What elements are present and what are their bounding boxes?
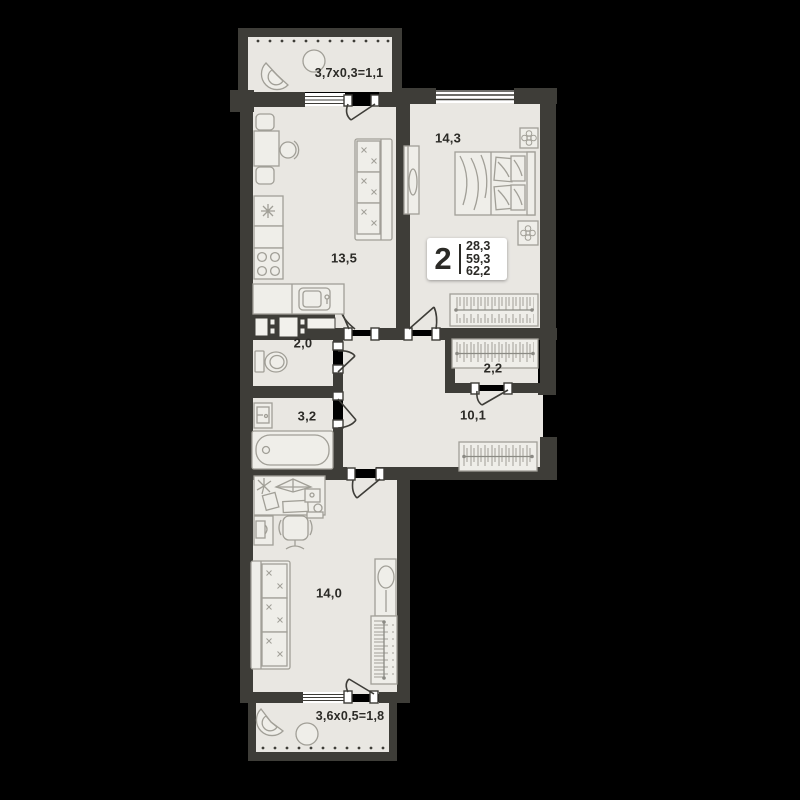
kitchen-sink-icon bbox=[253, 284, 344, 314]
nightstand-icon bbox=[518, 221, 538, 245]
apartment-info-badge: 2 28,3 59,3 62,2 bbox=[427, 238, 507, 280]
wardrobe-room-area-label: 2,2 bbox=[484, 361, 503, 376]
area-full: 62,2 bbox=[466, 265, 490, 278]
mirror-dresser-icon bbox=[404, 146, 419, 214]
bedroom-wardrobe-icon bbox=[450, 294, 538, 326]
room-mirror-icon bbox=[375, 559, 396, 616]
room-sofa-icon bbox=[251, 561, 290, 669]
monitor-icon bbox=[307, 512, 323, 518]
nightstand-icon bbox=[520, 128, 538, 148]
area-living: 28,3 bbox=[466, 240, 490, 253]
washbasin-icon bbox=[254, 403, 272, 428]
entrance-door-jamb bbox=[540, 437, 557, 469]
hallway-floor bbox=[343, 336, 445, 469]
desk-icon bbox=[254, 476, 325, 518]
floor-plan: 3,7х0,3=1,1 14,3 13,5 2,0 2,2 3,2 10,1 1… bbox=[0, 0, 800, 800]
fridge-icon bbox=[254, 196, 283, 226]
balcony-bottom-table-icon bbox=[296, 723, 318, 745]
double-bed-icon bbox=[455, 152, 535, 215]
bathroom-area-label: 3,2 bbox=[298, 409, 317, 424]
desk-gadget-icon bbox=[305, 489, 320, 502]
bedroom-area-label: 14,3 bbox=[435, 131, 461, 146]
floor-plan-drawing bbox=[0, 0, 800, 800]
bedroom-window bbox=[436, 90, 514, 103]
kitchen-cabinet-icon bbox=[254, 226, 283, 248]
rooms-count: 2 bbox=[427, 239, 459, 279]
balcony-top-area-label: 3,7х0,3=1,1 bbox=[315, 66, 384, 80]
mouse-icon bbox=[314, 504, 322, 512]
hallway-area-label: 10,1 bbox=[460, 408, 486, 423]
room-area-label: 14,0 bbox=[316, 586, 342, 601]
wc-area-label: 2,0 bbox=[294, 336, 313, 351]
kitchen-balcony-window bbox=[305, 93, 345, 106]
balcony-bottom-area-label: 3,6х0,5=1,8 bbox=[316, 709, 385, 723]
kitchen-sofa-icon bbox=[355, 139, 392, 240]
hallway-wardrobe-icon bbox=[459, 442, 537, 471]
room-balcony-window bbox=[303, 692, 344, 703]
toilet-icon bbox=[255, 351, 287, 372]
stove-icon bbox=[254, 248, 283, 279]
room-wardrobe-icon bbox=[371, 616, 397, 684]
kitchen-area-label: 13,5 bbox=[331, 251, 357, 266]
bathtub-icon bbox=[252, 431, 333, 469]
cabinet-icon bbox=[254, 516, 273, 545]
badge-divider bbox=[459, 244, 461, 274]
